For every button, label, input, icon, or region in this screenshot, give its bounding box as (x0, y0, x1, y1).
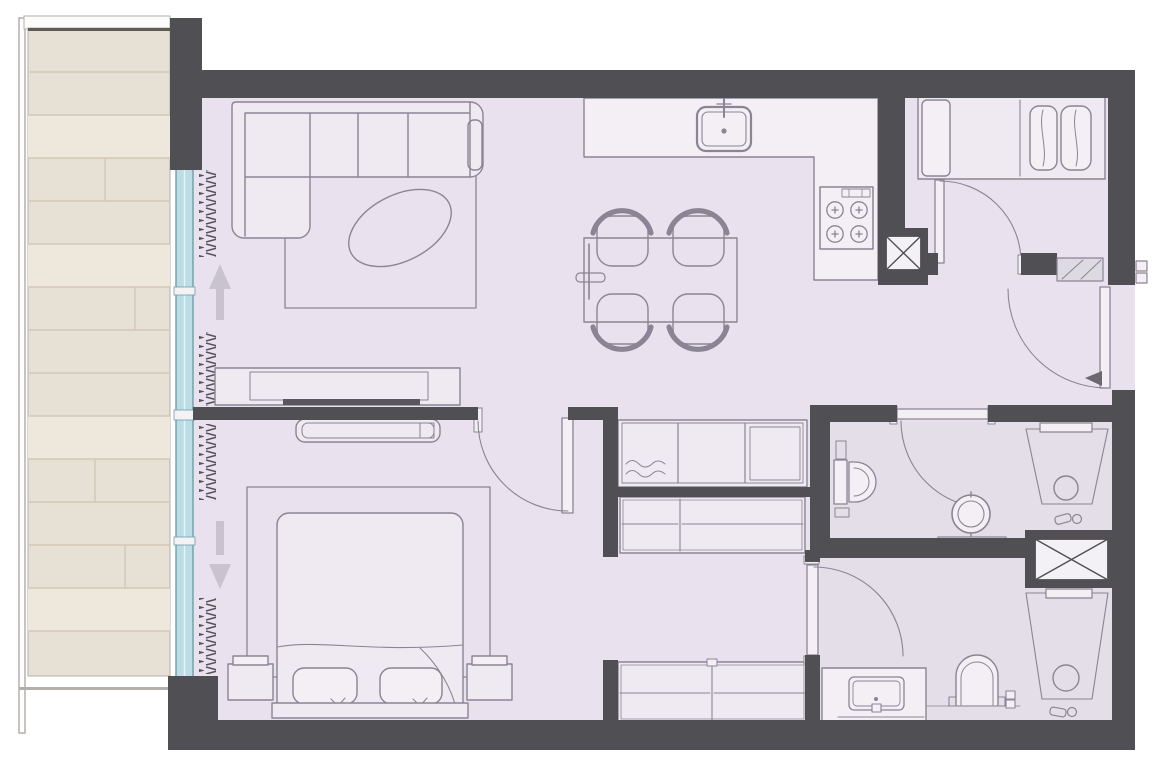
wall-segment (830, 405, 897, 422)
hall-closet (618, 420, 807, 487)
wall-segment (810, 405, 830, 558)
wall-segment (603, 660, 618, 722)
shaft-x-icon (1035, 539, 1108, 580)
wall-segment (168, 720, 1135, 750)
wall-segment (603, 407, 618, 557)
dressing-wardrobe (620, 497, 805, 553)
wall-segment (805, 655, 820, 722)
vanity-icon (822, 668, 926, 722)
wall-segment (1021, 253, 1057, 275)
parapet-top-band (24, 16, 170, 29)
bed-footboard (922, 100, 950, 176)
exterior-door-mark (1136, 273, 1147, 283)
wall-segment (805, 550, 820, 562)
parapet-outer-line (19, 18, 25, 733)
wall-segment (193, 407, 478, 420)
nightstand (228, 656, 273, 700)
shaft-x-icon (886, 236, 921, 270)
wall-segment (1112, 390, 1135, 750)
curtain-band (199, 598, 216, 674)
wall-segment (195, 70, 1135, 98)
floor-plan-drawing (0, 0, 1158, 759)
headboard (272, 703, 468, 718)
exterior-door-mark (1136, 261, 1147, 271)
curtain-band (199, 424, 216, 500)
curtain-band (199, 170, 216, 257)
bedroom-bench (296, 419, 440, 442)
balcony-bottom-line (19, 687, 170, 690)
wall-segment (810, 538, 1027, 558)
bedroom-wardrobe (618, 659, 807, 722)
floor-plan-page (0, 0, 1158, 759)
balcony (19, 16, 170, 733)
curtain-band (199, 332, 216, 406)
nightstand (467, 656, 512, 700)
pillow (293, 668, 357, 704)
wall-tv (283, 399, 420, 405)
wall-segment (1108, 70, 1135, 285)
wall-segment (618, 487, 830, 497)
deck-edge-line (28, 28, 170, 31)
window-wall (174, 167, 195, 680)
wall-segment (988, 405, 1112, 422)
pillow (380, 668, 442, 704)
wall-segment (168, 676, 218, 722)
cooktop-icon (820, 187, 873, 249)
